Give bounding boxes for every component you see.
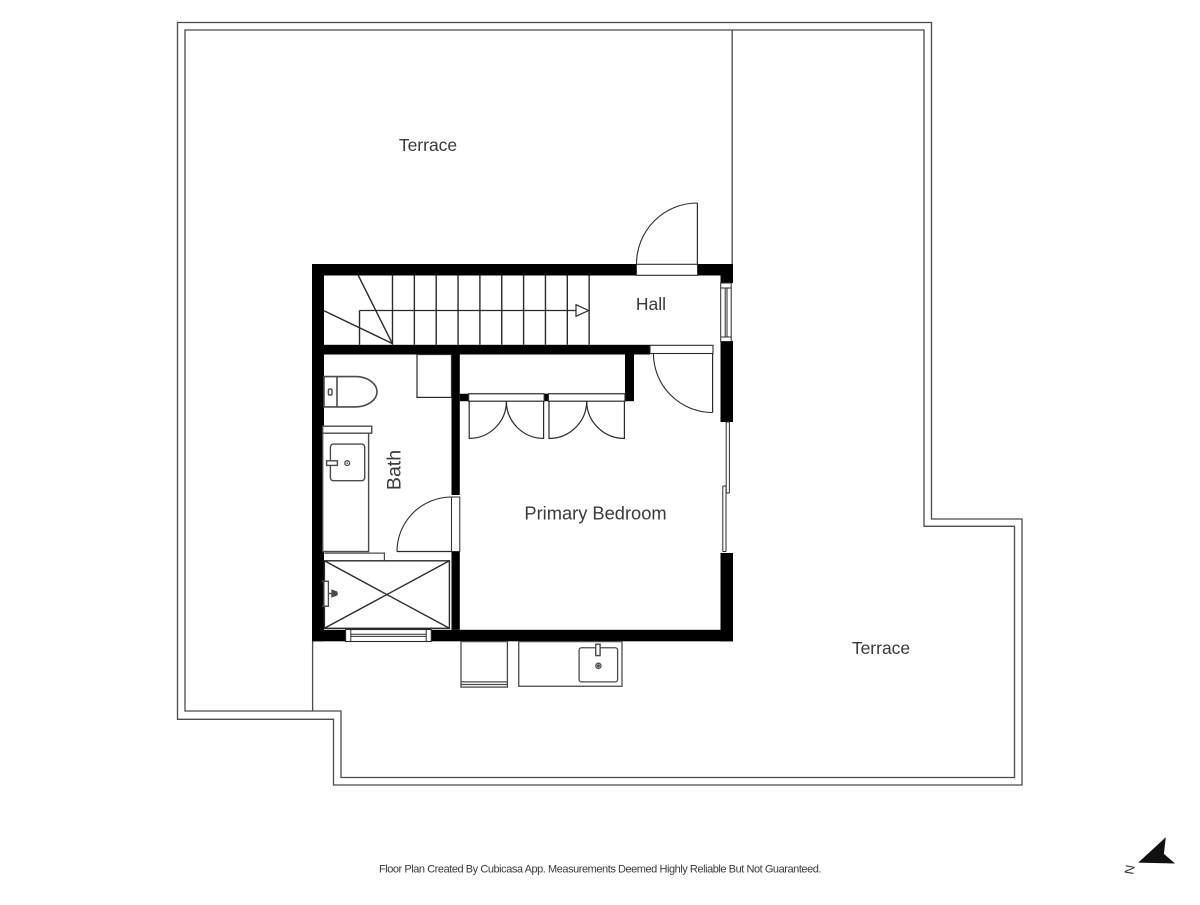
svg-text:Hall: Hall	[636, 294, 666, 314]
svg-text:Floor Plan Created By Cubicasa: Floor Plan Created By Cubicasa App. Meas…	[379, 864, 821, 876]
svg-text:Terrace: Terrace	[852, 638, 910, 658]
svg-text:Primary Bedroom: Primary Bedroom	[524, 503, 666, 524]
svg-text:Terrace: Terrace	[399, 135, 457, 155]
svg-text:Bath: Bath	[383, 450, 405, 490]
